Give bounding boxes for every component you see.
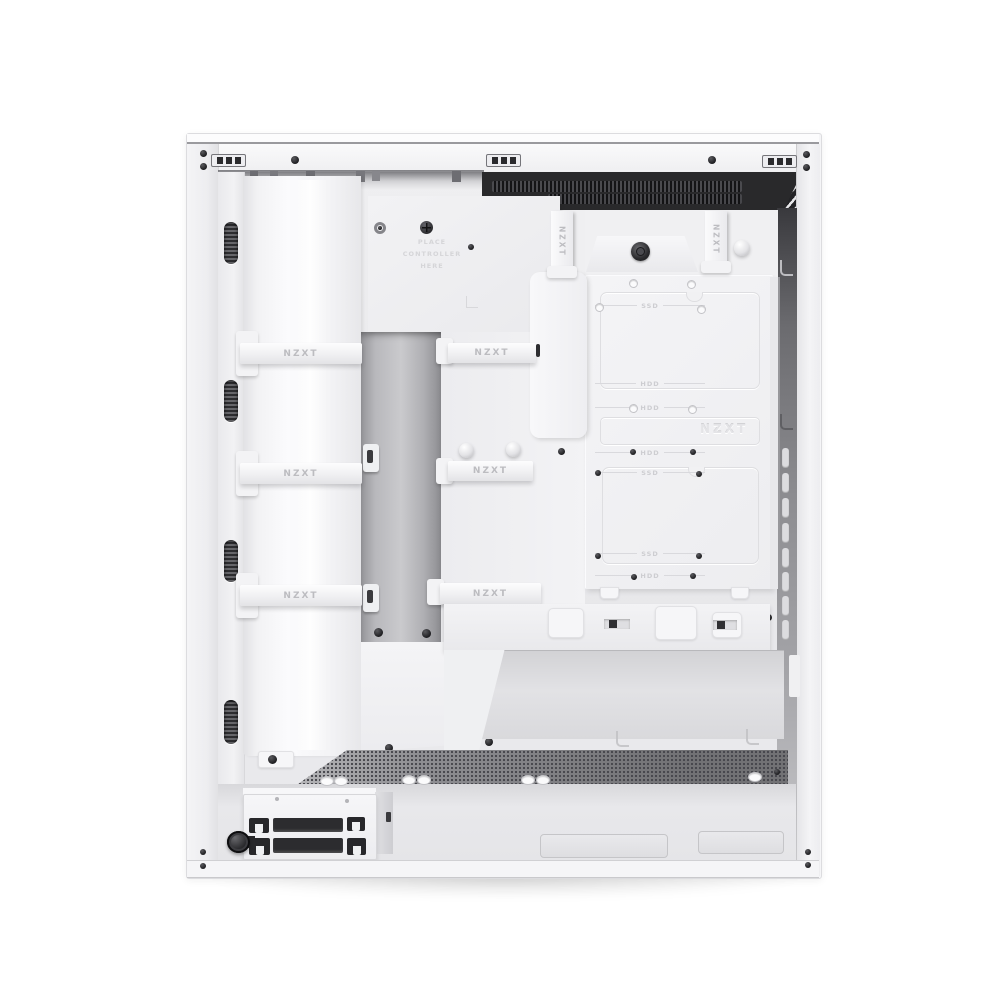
mount-hole (687, 280, 696, 289)
panel-hook-emboss (616, 731, 629, 747)
latch-slot (510, 157, 516, 164)
top-latch-vent (762, 155, 797, 168)
latch-tab (353, 846, 361, 855)
grommet (417, 775, 431, 785)
top-latch-vent (211, 154, 246, 167)
corner-rivet (805, 862, 811, 868)
latch-slot (768, 158, 774, 165)
latch-slot (492, 157, 498, 164)
strap-slot (536, 344, 540, 357)
inner-flange (218, 172, 245, 860)
strap-brand-label: NZXT (283, 591, 318, 601)
strap-fold (701, 261, 731, 273)
mount-hole-dark (690, 573, 696, 579)
grommet (748, 772, 762, 782)
controller-hint-line: CONTROLLER (382, 248, 482, 260)
strap-brand-label: NZXT (474, 348, 509, 358)
panel-hook-emboss (746, 729, 759, 745)
hinge-tab (372, 171, 380, 181)
drive-marking: HDD (595, 448, 705, 457)
latch-slot (217, 157, 223, 164)
marking-line (664, 575, 705, 576)
marking-line (664, 383, 705, 384)
latch-tab (352, 822, 360, 831)
cage-bay-slot (273, 838, 343, 853)
cage-side-port (386, 812, 391, 822)
strap-brand-label: NZXT (558, 226, 567, 257)
marking-label: SSD (641, 302, 658, 310)
panel-screw (708, 156, 716, 164)
corner-rivet (803, 164, 810, 171)
grommet (521, 775, 535, 785)
corner-rivet (200, 150, 207, 157)
side-vent-slot (224, 222, 238, 264)
strap-brand-label: NZXT (473, 466, 508, 476)
mount-hole-dark (690, 449, 696, 455)
marking-label: SSD (641, 550, 658, 558)
velcro-strap: NZXT (240, 463, 362, 484)
marking-label: HDD (640, 449, 659, 457)
mount-hole-dark (595, 553, 601, 559)
marking-label: HDD (640, 572, 659, 580)
phillips-screw (420, 221, 433, 234)
small-hole (468, 244, 474, 250)
marking-line (595, 472, 637, 473)
latch-tab (256, 846, 264, 855)
tie-slot (782, 448, 789, 468)
grommet (536, 775, 550, 785)
panel-screw (291, 156, 299, 164)
side-vent-slot (224, 380, 238, 422)
controller-hint-line: PLACE (382, 236, 482, 248)
top-latch-vent (486, 154, 521, 167)
tray-tab (731, 587, 749, 599)
product-photo-canvas: PLACE CONTROLLER HERE NZXT SSD HDD HDD H… (0, 0, 1000, 1000)
cage-rivet (275, 797, 279, 801)
right-edge-tab (789, 655, 800, 697)
radiator-vent-grille (548, 194, 742, 204)
tray-brand-emboss: NZXT (700, 422, 748, 436)
channel-clip-slot (367, 450, 373, 463)
thumbscrew-knob (227, 831, 250, 853)
hinge-tab (452, 171, 461, 182)
latch-slot (235, 157, 241, 164)
mount-hole (629, 404, 638, 413)
cable-tie-hook (780, 260, 793, 276)
marking-label: HDD (640, 380, 659, 388)
standoff-center (378, 226, 382, 230)
mount-hole-dark (631, 574, 637, 580)
channel-screw (422, 629, 431, 638)
channel-clip-slot (367, 590, 373, 603)
channel-screw (374, 628, 383, 637)
cage-latch (249, 818, 269, 833)
velcro-strap-vertical: NZXT (705, 211, 727, 267)
latch-slot (777, 158, 783, 165)
cage-rivet (345, 799, 349, 803)
corner-rivet (803, 151, 810, 158)
tie-slot (782, 523, 789, 543)
case-bottom-panel (187, 860, 819, 878)
mount-hole (629, 279, 638, 288)
velcro-strap: NZXT (448, 461, 533, 481)
cable-tie-hook (780, 414, 793, 430)
flange-tab (548, 608, 584, 638)
flange-slot (604, 619, 630, 629)
bracket-screw-socket (636, 247, 645, 256)
flange-slot-screw (717, 621, 725, 629)
marking-line (664, 452, 705, 453)
drive-marking: SSD (595, 468, 705, 477)
latch-slot (226, 157, 232, 164)
corner-rivet (200, 163, 207, 170)
floor-plate (540, 834, 668, 858)
mount-hole (697, 305, 706, 314)
marking-label: SSD (641, 469, 658, 477)
cage-latch (347, 838, 366, 855)
drive-marking: SSD (595, 301, 705, 310)
drive-marking: HDD (595, 379, 705, 388)
flange-slot-screw (609, 620, 617, 628)
marking-line (595, 383, 636, 384)
drive-marking: HDD (595, 571, 705, 580)
floor-plate (698, 831, 784, 854)
cage-bay-slot (273, 818, 343, 832)
case-left-wall (187, 144, 219, 876)
corner-rivet (805, 849, 811, 855)
radiator-vent-grille (492, 181, 742, 192)
velcro-strap: NZXT (240, 343, 362, 364)
tray-right-flange (770, 277, 780, 589)
latch-slot (786, 158, 792, 165)
strap-brand-label: NZXT (283, 469, 318, 479)
mount-hole (688, 405, 697, 414)
ball-stud (734, 240, 750, 256)
corner-rivet (200, 863, 206, 869)
tie-slot (782, 620, 789, 640)
panel-screw (485, 738, 493, 746)
marking-label: HDD (640, 404, 659, 412)
mount-hole-dark (696, 471, 702, 477)
mount-hole-dark (595, 470, 601, 476)
tie-slot (782, 572, 789, 592)
duct-foot-screw (268, 755, 277, 764)
marking-line (595, 553, 637, 554)
grommet (320, 776, 334, 786)
grommet (334, 776, 348, 786)
velcro-strap: NZXT (448, 343, 536, 363)
mount-hole (595, 303, 604, 312)
drive-cage-side (375, 792, 393, 854)
controller-hint-text: PLACE CONTROLLER HERE (382, 236, 482, 272)
corner-emboss-mark (466, 296, 478, 308)
screw-cross (420, 221, 433, 234)
ball-stud (459, 443, 474, 458)
latch-slot (501, 157, 507, 164)
tie-slot (782, 548, 789, 568)
plate-screw (558, 448, 565, 455)
velcro-strap: NZXT (440, 583, 541, 604)
case-right-wall (796, 144, 820, 876)
marking-line (664, 407, 705, 408)
velcro-strap: NZXT (240, 585, 362, 606)
controller-hint-line: HERE (382, 260, 482, 272)
mesh-screw (774, 769, 780, 775)
strap-brand-label: NZXT (712, 224, 721, 255)
flange-tab (655, 606, 697, 640)
tie-slot (782, 473, 789, 493)
velcro-strap-vertical: NZXT (551, 211, 573, 271)
tie-slot (782, 596, 789, 616)
mount-hole-dark (630, 449, 636, 455)
side-vent-slot (224, 700, 238, 744)
tray-tab (600, 587, 619, 599)
ball-stud (506, 442, 521, 457)
corner-rivet (200, 849, 206, 855)
grommet (402, 775, 416, 785)
strap-fold (547, 266, 577, 278)
tie-slot (782, 498, 789, 518)
strap-brand-label: NZXT (473, 589, 508, 599)
drive-marking: SSD (595, 549, 705, 558)
latch-tab (255, 824, 263, 833)
mount-hole-dark (696, 553, 702, 559)
strap-brand-label: NZXT (283, 349, 318, 359)
cage-latch (347, 817, 365, 831)
